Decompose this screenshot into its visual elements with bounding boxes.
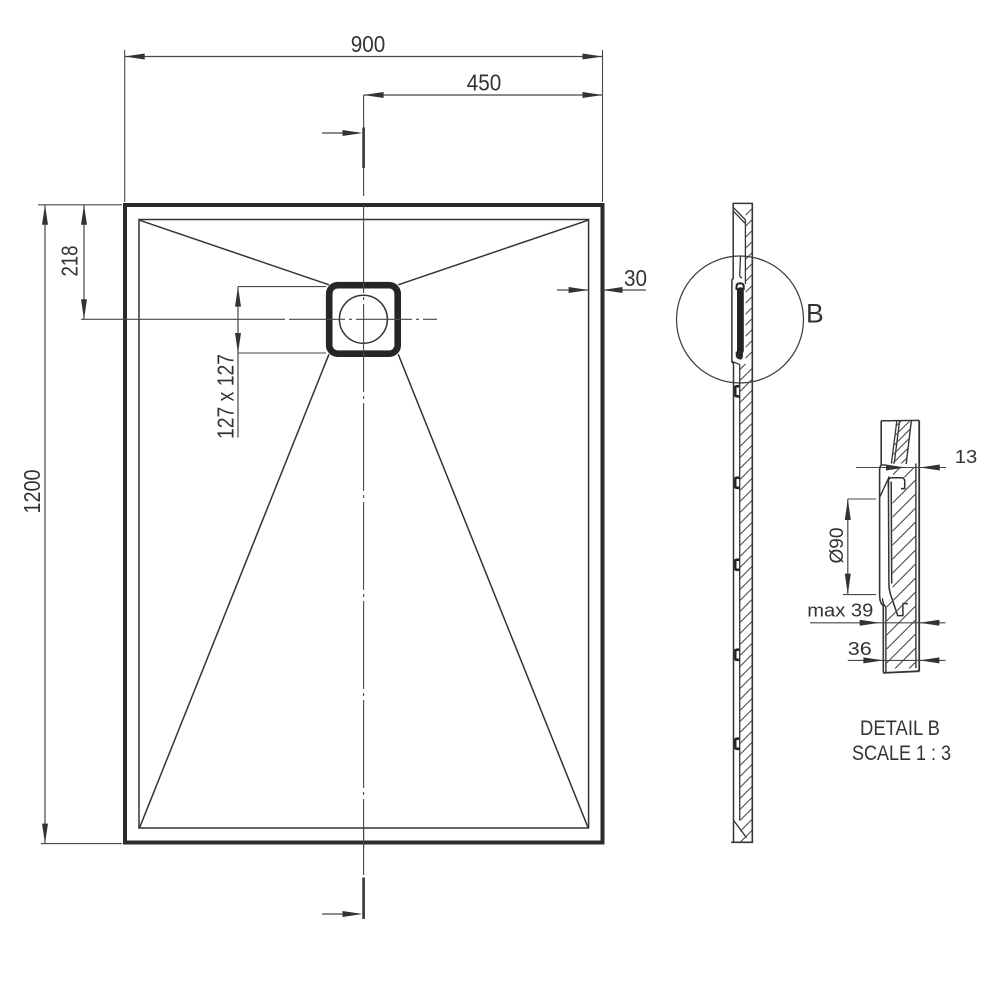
svg-text:B: B — [806, 299, 824, 329]
svg-text:DETAIL B: DETAIL B — [860, 716, 940, 740]
svg-text:max 39: max 39 — [807, 600, 873, 621]
svg-text:36: 36 — [848, 638, 872, 659]
svg-text:13: 13 — [955, 446, 978, 467]
svg-text:900: 900 — [351, 31, 386, 57]
svg-text:450: 450 — [467, 70, 502, 96]
svg-text:Ø90: Ø90 — [827, 528, 848, 564]
svg-text:30: 30 — [624, 265, 647, 291]
svg-text:127 x 127: 127 x 127 — [213, 354, 239, 439]
svg-text:1200: 1200 — [19, 470, 45, 514]
svg-text:218: 218 — [57, 246, 83, 277]
svg-text:SCALE 1 : 3: SCALE 1 : 3 — [852, 741, 951, 765]
